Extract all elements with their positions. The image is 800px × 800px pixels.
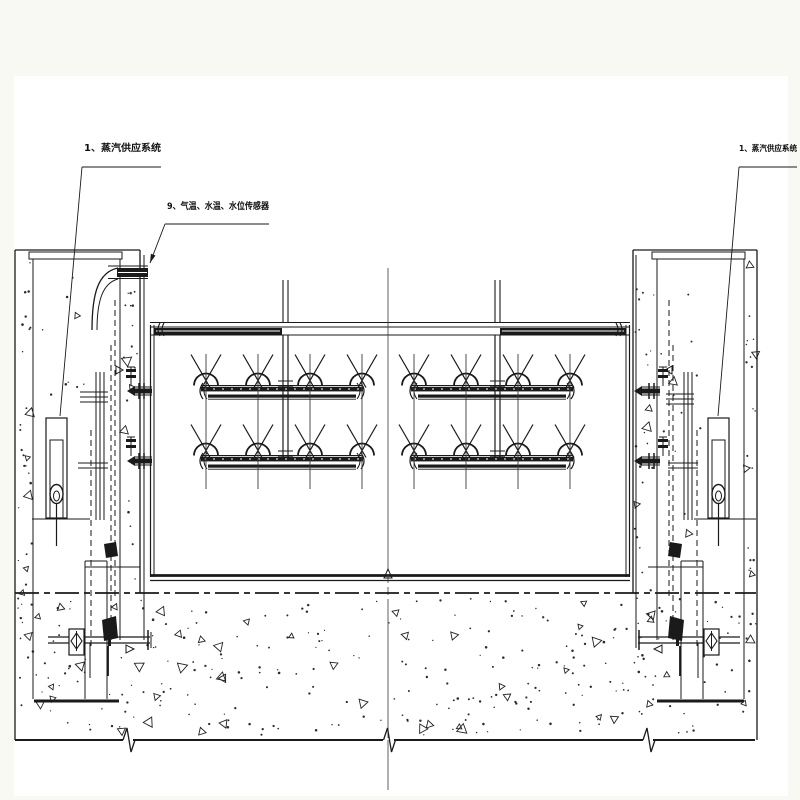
paper-sheet <box>14 76 788 796</box>
label-steam-supply-left: 1、蒸汽供应系统 <box>84 142 162 154</box>
drawing-canvas: 1、蒸汽供应系统 9、气温、水温、水位传感器 1、蒸汽供应系统 <box>0 0 800 800</box>
label-sensors: 9、气温、水温、水位传感器 <box>167 200 270 212</box>
label-steam-supply-right: 1、蒸汽供应系统 <box>739 143 797 153</box>
drawing-page: 1、蒸汽供应系统 9、气温、水温、水位传感器 1、蒸汽供应系统 <box>0 0 800 800</box>
